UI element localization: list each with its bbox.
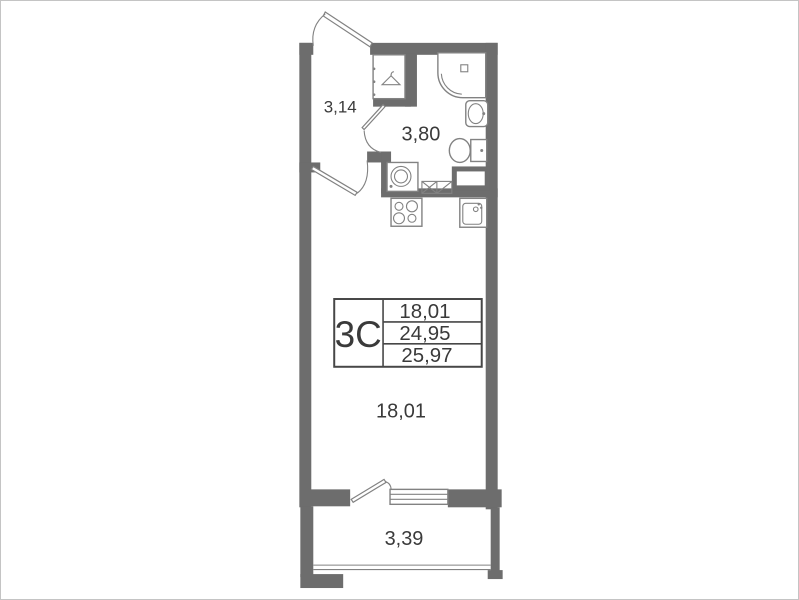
room-area-label: 18,01 [376,401,426,423]
kitchen-sink-icon [460,198,487,227]
area-value-3: 25,97 [401,345,452,367]
unit-info-table: 3С 18,01 24,95 25,97 [334,299,482,367]
wall-balcony-right-foot [488,570,503,579]
unit-type-label: 3С [335,314,382,355]
wardrobe [373,55,405,99]
bathroom-area-label: 3,80 [402,124,441,146]
wall-balcony-right [491,507,500,576]
wall-bottom-left-block [303,489,350,506]
washing-machine-icon [387,162,418,191]
entrance-door [313,12,372,47]
kitchen-stove-icon [391,198,422,226]
balcony-window [390,489,448,504]
toilet-icon [449,139,486,163]
floorplan-drawing: 3С 18,01 24,95 25,97 3,14 3,80 18,01 3,3… [1,1,798,599]
bathroom-sink-icon [466,101,488,127]
area-value-2: 24,95 [399,323,450,345]
balcony-area-label: 3,39 [385,528,424,550]
bathroom-door [362,105,385,153]
floorplan-canvas: 3С 18,01 24,95 25,97 3,14 3,80 18,01 3,3… [0,0,799,600]
balcony-glazing [313,565,490,569]
hall-area-label: 3,14 [324,98,357,117]
wall-bottom-right-block [448,489,502,507]
wall-balcony-left-foot [300,574,343,588]
shower-icon [438,53,486,98]
balcony-door [351,479,391,502]
vent-shaft [452,166,490,190]
area-value-1: 18,01 [399,301,450,323]
wall-left-outer [299,43,311,507]
wall-balcony-left [300,506,313,577]
